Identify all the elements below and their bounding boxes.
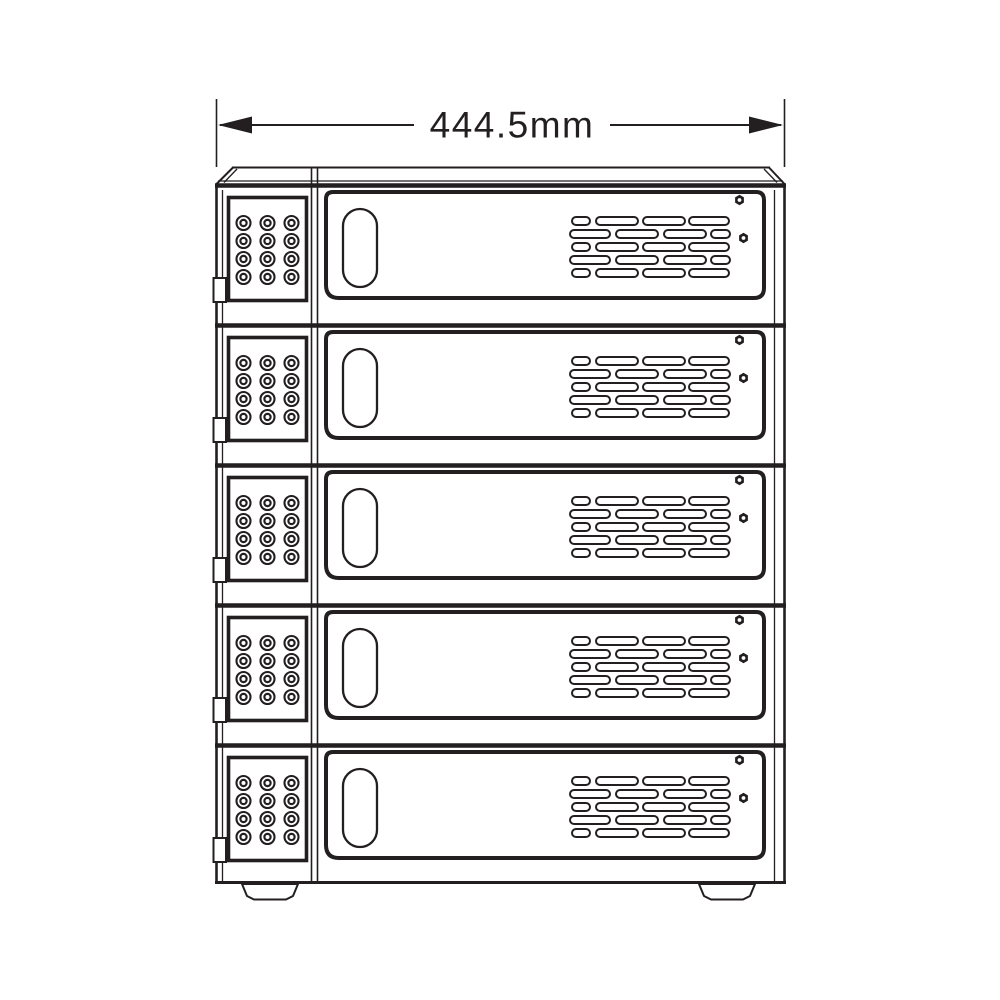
drive-bay-2 [214,332,765,442]
technical-drawing: 444.5mm [0,0,1000,1000]
dimension-label: 444.5mm [430,105,595,146]
drive-bay-1 [214,192,765,302]
foot-left [242,884,298,900]
dimension-callout: 444.5mm [217,99,785,167]
top-lid [217,168,785,185]
drive-bay-5 [214,752,765,862]
enclosure [214,168,787,900]
dimension-arrow-right-icon [749,117,783,134]
drive-bay-4 [214,612,765,722]
drive-bay-3 [214,472,765,582]
dimension-arrow-left-icon [218,117,252,134]
drawing-canvas: 444.5mm [0,0,1000,1000]
foot-right [699,884,755,900]
